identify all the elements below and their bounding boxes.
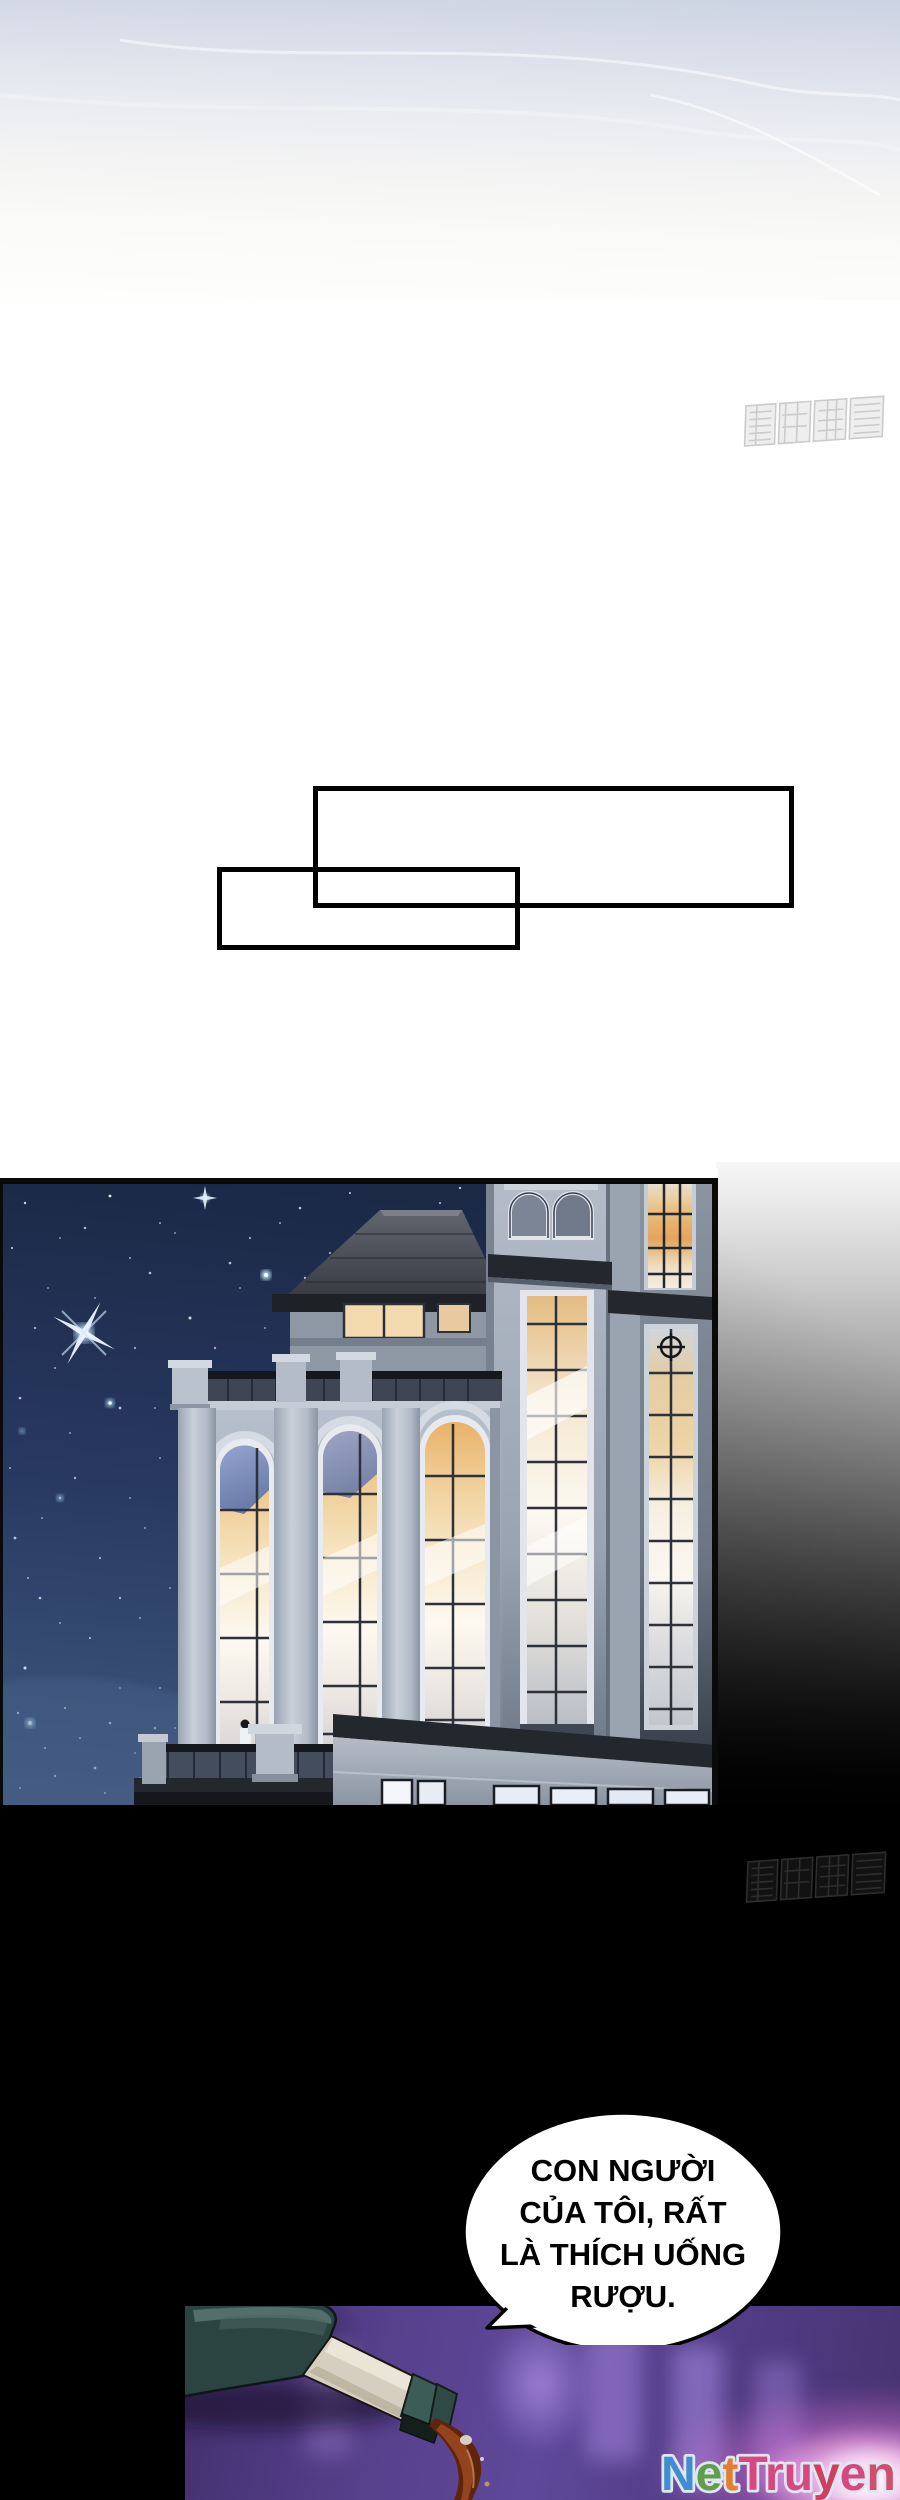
svg-text:NetTruyen: NetTruyen — [661, 2448, 896, 2500]
